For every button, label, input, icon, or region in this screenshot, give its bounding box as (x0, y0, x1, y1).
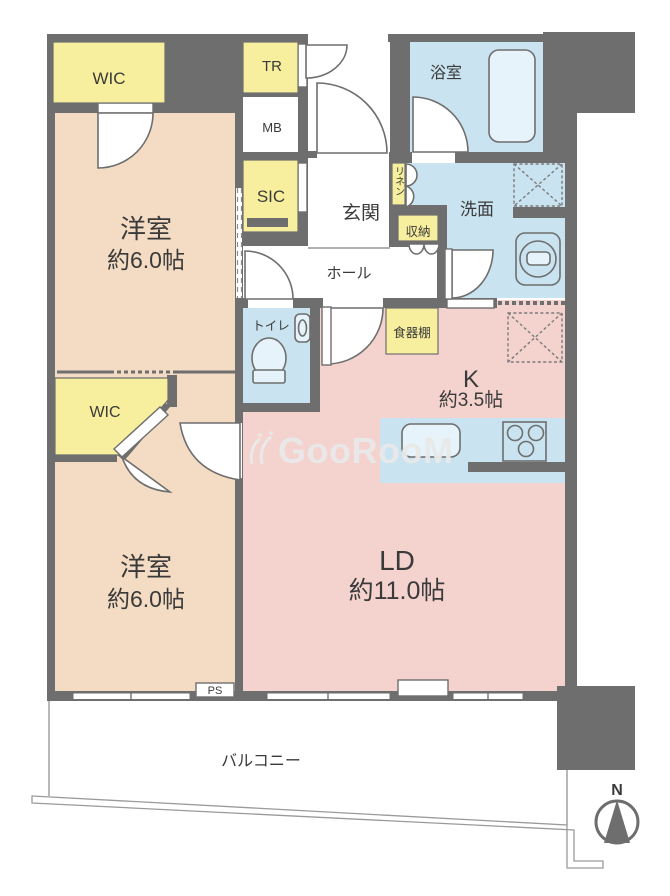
living-size: 約11.0帖 (349, 577, 446, 605)
kitchen-size: 約3.5帖 (439, 389, 503, 411)
sic-door-leaf (298, 163, 307, 212)
washroom-door-leaf (445, 249, 452, 299)
wic1-label: WIC (92, 69, 125, 88)
kitchen-passage-panel (447, 299, 494, 308)
wall-washer-divider (513, 207, 565, 218)
ps-label: PS (208, 685, 223, 697)
wic1-door-leaf (98, 103, 153, 113)
wall-entrance-east (390, 34, 410, 152)
living-door-leaf (322, 307, 331, 365)
living-name: LD (379, 545, 415, 576)
wall-wic2-bottom (47, 455, 117, 462)
floor-plan-page: GooRooM N 洋室 約6.0帖 洋室 約6.0帖 LD 約11.0帖 K … (0, 0, 670, 896)
compass: N (596, 782, 638, 843)
kitchen-name: K (463, 366, 479, 393)
floor-plan: GooRooM N 洋室 約6.0帖 洋室 約6.0帖 LD 約11.0帖 K … (0, 0, 670, 896)
bathtub-icon (489, 50, 535, 142)
balcony-label: バルコニー (221, 753, 301, 770)
wall-bath-bottom-b (455, 152, 565, 163)
bedroom2-name: 洋室 (120, 552, 172, 582)
wall-stub-entrance (308, 151, 317, 158)
pillar-bottom-right (557, 686, 635, 770)
bedroom1-size: 約6.0帖 (107, 247, 185, 273)
window-sleeve-box (398, 680, 448, 696)
watermark: GooRooM (251, 430, 453, 471)
wall-hall-bottom-c (383, 298, 443, 308)
balcony-railing (32, 796, 603, 868)
counter-edge (468, 462, 565, 472)
wall-right (565, 110, 577, 692)
wall-block-wic1-right (165, 42, 243, 113)
wall-bath-right (543, 42, 565, 152)
window-living-left (267, 692, 390, 701)
toilet-label: トイレ (252, 319, 290, 333)
compass-needle-icon (604, 800, 630, 843)
watermark-logo-dot-1 (258, 433, 262, 437)
cupboard-label: 食器棚 (393, 325, 431, 340)
bathroom-label: 浴室 (430, 64, 462, 82)
washroom-label: 洗面 (460, 200, 494, 219)
storage-label: 収納 (405, 225, 430, 239)
entrance-label: 玄関 (342, 202, 380, 224)
wall-toilet-bottom (235, 403, 320, 412)
wall-toilet-east (310, 298, 320, 412)
wall-left (47, 34, 55, 701)
wall-top-right (388, 34, 543, 42)
bedroom2-size: 約6.0帖 (107, 586, 185, 612)
sic-shelf (247, 218, 288, 227)
meter-box-label: MB (262, 120, 282, 135)
watermark-logo-dot-2 (269, 431, 273, 435)
wall-wic1-bottom-a (53, 103, 98, 113)
sic-label: SIC (257, 187, 285, 206)
watermark-text: GooRooM (278, 430, 453, 471)
wall-bath-bottom-a (405, 152, 412, 163)
window-living-right (453, 692, 523, 701)
bedroom1-name: 洋室 (120, 214, 172, 244)
balcony (32, 701, 603, 868)
wall-wic1-bottom-b (153, 103, 165, 113)
trunk-label: TR (262, 58, 282, 75)
wic2-label: WIC (89, 404, 120, 421)
linen-label: リネン (393, 166, 405, 196)
hall-label: ホール (326, 265, 371, 282)
window-bedroom2 (73, 692, 190, 701)
compass-north-label: N (611, 782, 623, 799)
